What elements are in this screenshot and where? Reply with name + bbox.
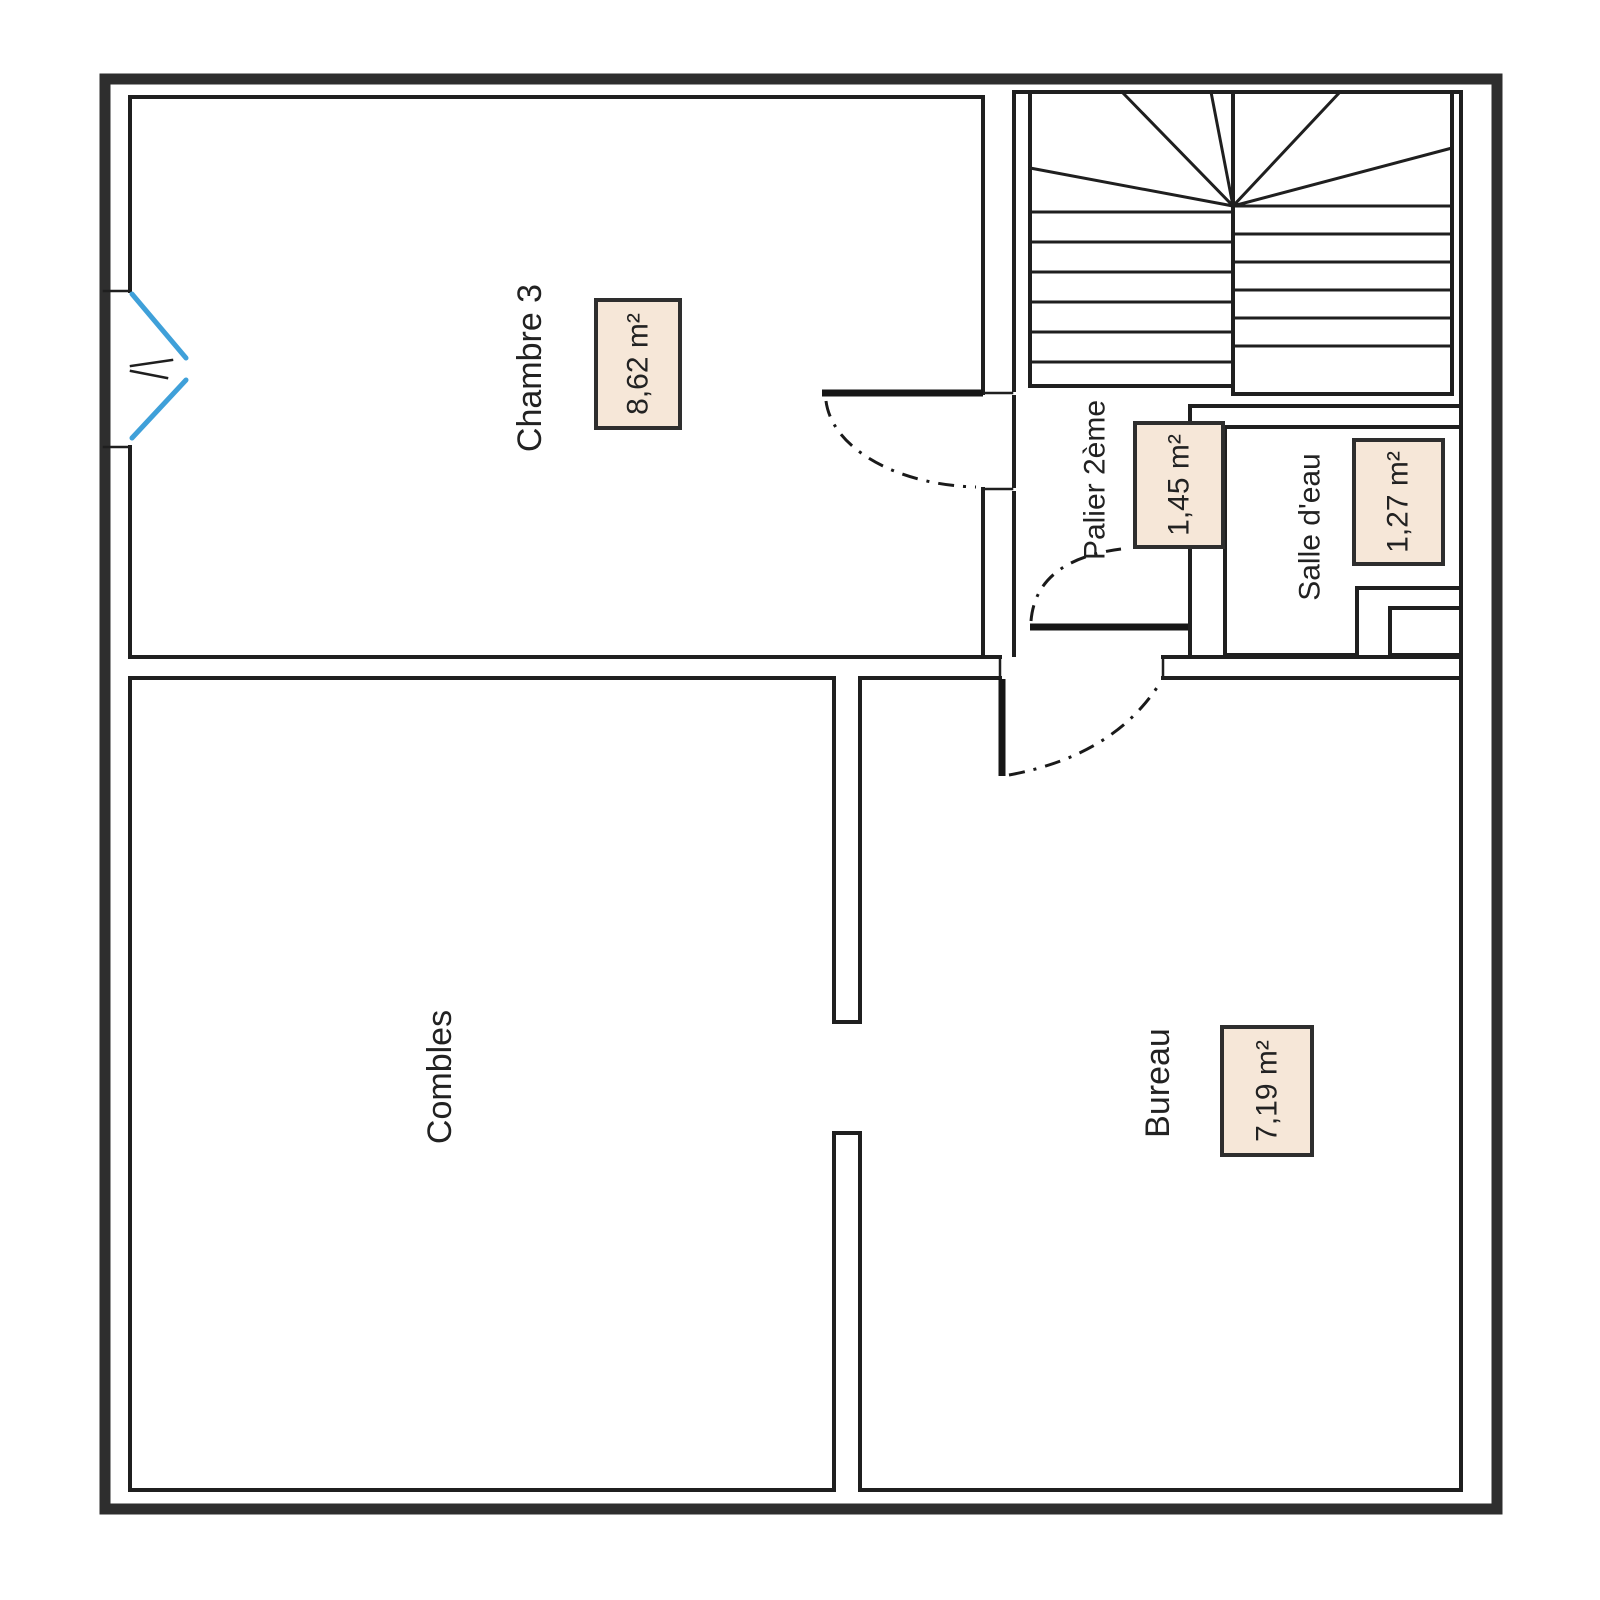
stair-winder-steps (1030, 92, 1452, 206)
floor-plan-canvas: Chambre 3 8,62 m² Palier 2ème 1,45 m² Sa… (0, 0, 1600, 1600)
mid-floor-walls (130, 657, 1461, 678)
area-value-salle-eau: 1,27 m² (1382, 451, 1415, 553)
window-casement-icon (132, 294, 186, 438)
stair-treads-left (1030, 212, 1233, 362)
room-label-combles: Combles (421, 1010, 459, 1144)
room-label-salle-eau: Salle d'eau (1294, 453, 1327, 601)
area-value-palier: 1,45 m² (1163, 434, 1196, 536)
stair-treads-right (1233, 206, 1452, 346)
room-label-chambre3: Chambre 3 (511, 284, 549, 452)
labels: Chambre 3 8,62 m² Palier 2ème 1,45 m² Sa… (421, 284, 1415, 1144)
interior-walls (130, 92, 1461, 1490)
area-value-chambre3: 8,62 m² (622, 313, 655, 415)
combles-walls (130, 678, 834, 1490)
window (104, 291, 186, 447)
room-label-bureau: Bureau (1139, 1028, 1177, 1138)
window-handle-icon (131, 360, 172, 378)
staircase (1014, 92, 1461, 657)
chambre3-walls (130, 97, 983, 657)
bureau-door-swing (1009, 686, 1158, 775)
chambre3-door-swing (826, 401, 976, 487)
area-value-bureau: 7,19 m² (1251, 1040, 1284, 1142)
floor-plan-page: Chambre 3 8,62 m² Palier 2ème 1,45 m² Sa… (0, 0, 1600, 1600)
room-label-palier: Palier 2ème (1079, 400, 1112, 560)
duct-box (1390, 608, 1461, 655)
exterior-wall (105, 79, 1497, 1509)
middle-partition (834, 678, 860, 1490)
